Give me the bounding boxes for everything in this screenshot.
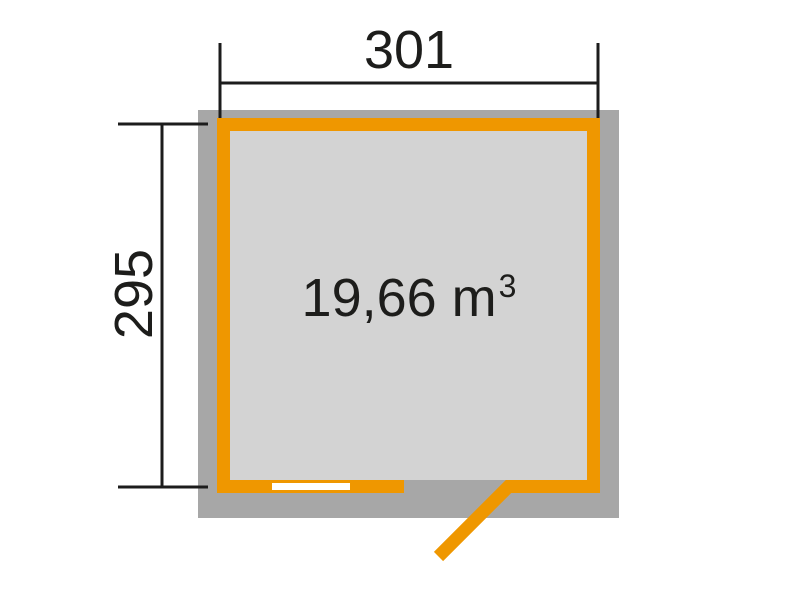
- floor-plan-diagram: 301 295 19,66 m3: [0, 0, 800, 600]
- width-dimension-label: 301: [309, 22, 509, 78]
- height-dimension-label: 295: [106, 194, 162, 394]
- window: [272, 483, 350, 490]
- volume-exponent: 3: [499, 268, 517, 304]
- volume-label: 19,66 m3: [209, 270, 609, 326]
- wall-top: [217, 118, 600, 131]
- volume-value: 19,66 m: [302, 268, 497, 328]
